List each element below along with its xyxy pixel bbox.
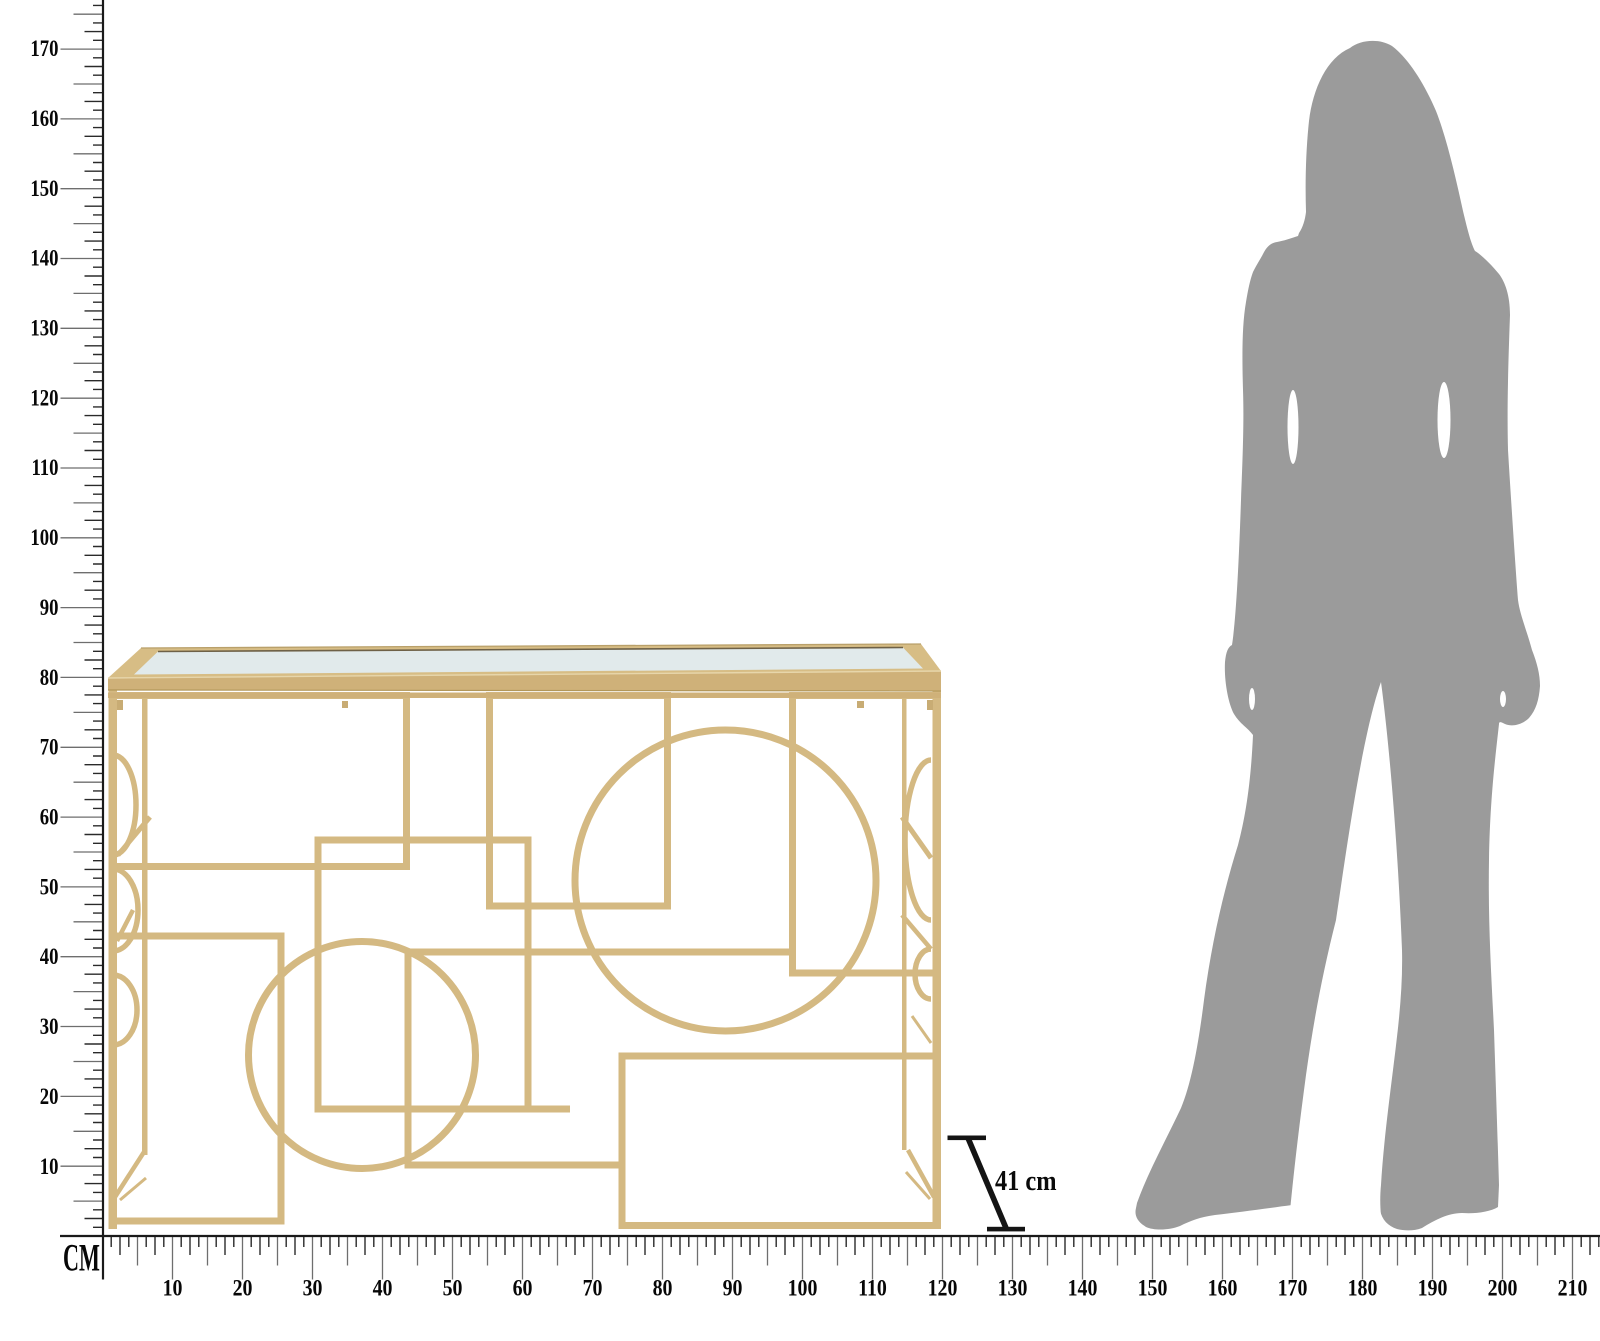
svg-text:120: 120 [30,384,58,411]
svg-text:170: 170 [30,35,58,62]
svg-text:200: 200 [1488,1275,1518,1301]
svg-text:90: 90 [40,594,59,621]
svg-text:210: 210 [1558,1275,1588,1301]
svg-text:80: 80 [653,1275,673,1301]
svg-text:140: 140 [30,245,58,272]
svg-text:160: 160 [30,105,58,132]
svg-text:50: 50 [443,1275,463,1301]
svg-text:40: 40 [373,1275,393,1301]
svg-text:110: 110 [31,454,58,481]
svg-text:70: 70 [40,734,59,761]
svg-text:10: 10 [163,1275,183,1301]
svg-text:41 cm: 41 cm [995,1164,1057,1196]
svg-text:20: 20 [40,1083,59,1110]
svg-text:100: 100 [30,524,58,551]
svg-text:180: 180 [1348,1275,1378,1301]
svg-text:110: 110 [858,1275,887,1301]
svg-text:130: 130 [30,315,58,342]
svg-text:CM: CM [63,1235,100,1279]
svg-text:60: 60 [40,804,59,831]
svg-text:40: 40 [40,943,59,970]
svg-text:170: 170 [1278,1275,1308,1301]
svg-text:30: 30 [303,1275,323,1301]
svg-text:60: 60 [513,1275,533,1301]
svg-text:190: 190 [1418,1275,1448,1301]
svg-text:150: 150 [1138,1275,1168,1301]
svg-text:140: 140 [1068,1275,1098,1301]
svg-text:70: 70 [583,1275,603,1301]
svg-text:10: 10 [40,1153,59,1180]
svg-text:50: 50 [40,873,59,900]
svg-text:20: 20 [233,1275,253,1301]
svg-text:130: 130 [998,1275,1028,1301]
svg-text:160: 160 [1208,1275,1238,1301]
svg-text:30: 30 [40,1013,59,1040]
svg-text:120: 120 [928,1275,958,1301]
svg-text:90: 90 [723,1275,743,1301]
svg-text:100: 100 [788,1275,818,1301]
svg-text:80: 80 [40,664,59,691]
svg-text:150: 150 [30,175,58,202]
